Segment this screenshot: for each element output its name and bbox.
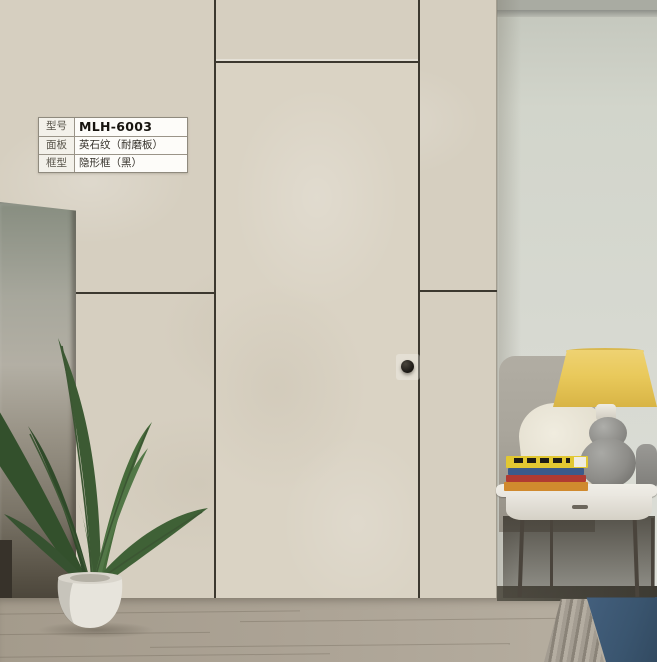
potted-plant [0,330,232,662]
spec-value-frame: 隐形框（黑） [75,155,187,172]
spec-value-panel: 英石纹（耐磨板） [75,137,187,154]
book-orange [504,482,588,491]
book-page-edge [574,457,586,467]
lamp-base [580,438,636,488]
drawer-handle [572,505,588,509]
panel-groove-right-wall [420,290,497,292]
spec-label-frame: 框型 [39,155,75,172]
spec-row-panel: 面板 英石纹（耐磨板） [39,136,187,154]
table-leg [550,518,553,586]
ceiling-band [497,0,657,10]
showroom-scene: 型号 MLH-6003 面板 英石纹（耐磨板） 框型 隐形框（黑） [0,0,657,662]
lamp-shade [553,350,657,407]
product-spec-table: 型号 MLH-6003 面板 英石纹（耐磨板） 框型 隐形框（黑） [38,117,188,173]
table-leg [651,518,654,586]
plant-leaves [0,338,208,586]
gray-sculpture [636,444,657,488]
spec-row-frame: 框型 隐形框（黑） [39,154,187,172]
spec-label-model: 型号 [39,118,75,136]
book-yellow [506,456,588,468]
door-groove-top [216,61,418,63]
ceiling-band-shadow [497,10,657,17]
spec-row-model: 型号 MLH-6003 [39,118,187,136]
spec-label-panel: 面板 [39,137,75,154]
plant-pot [58,572,123,628]
spec-value-model: MLH-6003 [75,118,187,136]
door-knob [401,360,414,373]
door-groove-highlight [216,59,418,61]
door-groove-right [418,0,420,603]
book-blue [508,468,584,475]
hidden-door [216,62,418,605]
book-spine-text [514,458,570,463]
book-red [506,475,586,482]
